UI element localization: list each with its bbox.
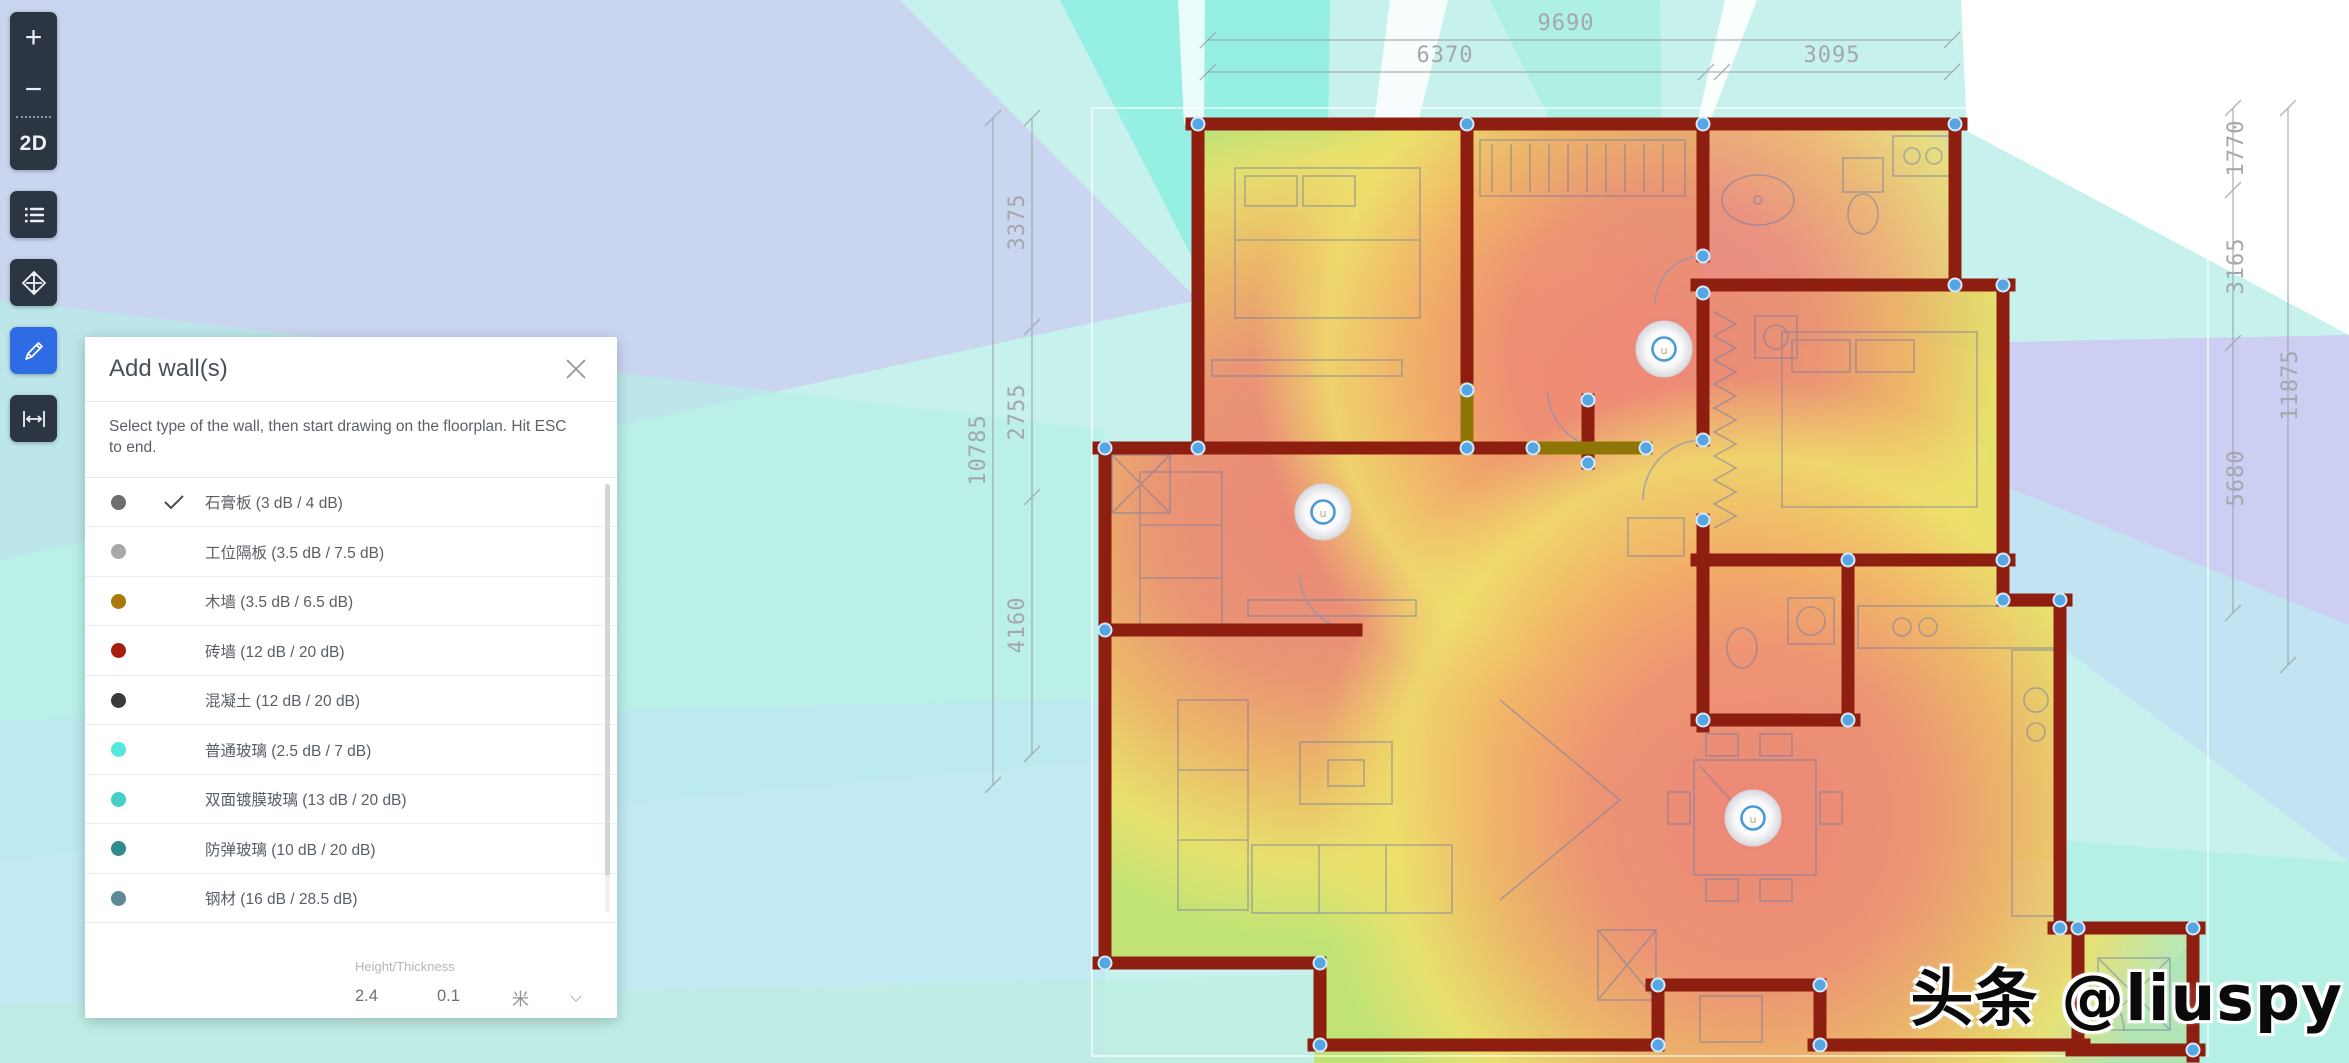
wall-type-label: 石膏板 (3 dB / 4 dB) xyxy=(205,491,343,513)
zoom-out-button[interactable]: − xyxy=(10,64,57,116)
list-icon xyxy=(22,203,46,227)
add-walls-dialog: Add wall(s) Select type of the wall, the… xyxy=(85,337,617,1018)
wall-color-dot xyxy=(111,693,126,708)
wall-type-label: 工位隔板 (3.5 dB / 7.5 dB) xyxy=(205,541,384,563)
wall-type-label: 钢材 (16 dB / 28.5 dB) xyxy=(205,887,358,909)
wall-type-label: 防弹玻璃 (10 dB / 20 dB) xyxy=(205,838,376,860)
wall-type-row[interactable]: 石膏板 (3 dB / 4 dB) xyxy=(85,478,617,528)
access-point-1[interactable]: u xyxy=(1295,484,1351,540)
move-tool-button[interactable] xyxy=(10,259,57,306)
thickness-input[interactable]: 0.1 xyxy=(437,987,460,1006)
wall-color-dot xyxy=(111,594,126,609)
measure-tool-button[interactable] xyxy=(10,395,57,442)
app-stage: 9690 6370 3095 3375 2755 4160 10785 1770… xyxy=(0,0,2349,1063)
zoom-in-button[interactable]: + xyxy=(10,12,57,64)
wall-color-dot xyxy=(111,495,126,510)
wall-type-row[interactable]: 木墙 (3.5 dB / 6.5 dB) xyxy=(85,577,617,627)
dialog-description: Select type of the wall, then start draw… xyxy=(85,402,617,478)
draw-wall-tool-button[interactable] xyxy=(10,327,57,374)
dimension-label: 4160 xyxy=(1005,597,1030,654)
wall-type-label: 普通玻璃 (2.5 dB / 7 dB) xyxy=(205,739,371,761)
dimension-label: 5680 xyxy=(2224,450,2249,507)
height-thickness-label: Height/Thickness xyxy=(355,959,455,974)
scrollbar-track[interactable] xyxy=(605,484,610,912)
svg-text:u: u xyxy=(1750,813,1757,826)
dimension-label: 9690 xyxy=(1538,11,1595,36)
dimension-label: 3165 xyxy=(2224,238,2249,295)
dimension-label: 3095 xyxy=(1804,43,1861,68)
dialog-title: Add wall(s) xyxy=(109,355,228,383)
svg-text:u: u xyxy=(1661,344,1668,357)
dimension-label: 3375 xyxy=(1005,194,1030,251)
dimension-label: 6370 xyxy=(1417,43,1474,68)
wall-color-dot xyxy=(111,643,126,658)
wall-type-label: 双面镀膜玻璃 (13 dB / 20 dB) xyxy=(205,788,407,810)
wall-type-row[interactable]: 钢材 (16 dB / 28.5 dB) xyxy=(85,874,617,924)
2d-mode-button[interactable]: 2D xyxy=(10,118,57,170)
zoom-mode-group: + − 2D xyxy=(10,12,57,170)
close-icon xyxy=(563,356,589,382)
wall-color-dot xyxy=(111,792,126,807)
wall-color-dot xyxy=(111,742,126,757)
wall-type-row[interactable]: 工位隔板 (3.5 dB / 7.5 dB) xyxy=(85,527,617,577)
access-point-2[interactable]: u xyxy=(1636,321,1692,377)
layers-list-button[interactable] xyxy=(10,191,57,238)
unit-select[interactable]: 米 xyxy=(512,985,529,1010)
wall-color-dot xyxy=(111,841,126,856)
wall-type-row[interactable]: 砖墙 (12 dB / 20 dB) xyxy=(85,626,617,676)
wall-type-label: 砖墙 (12 dB / 20 dB) xyxy=(205,640,345,662)
dialog-header: Add wall(s) xyxy=(85,337,617,402)
dialog-footer: Height/Thickness 2.4 0.1 米 xyxy=(85,923,617,1032)
close-button[interactable] xyxy=(559,352,593,386)
wall-type-row[interactable]: 普通玻璃 (2.5 dB / 7 dB) xyxy=(85,725,617,775)
toolbar: + − 2D xyxy=(10,12,57,442)
height-input[interactable]: 2.4 xyxy=(355,987,378,1006)
dimension-label: 2755 xyxy=(1005,384,1030,441)
dimension-label: 10785 xyxy=(966,414,991,485)
wall-type-row[interactable]: 双面镀膜玻璃 (13 dB / 20 dB) xyxy=(85,775,617,825)
watermark: 头条 @liuspy xyxy=(1910,948,2343,1039)
access-point-3[interactable]: u xyxy=(1725,790,1781,846)
chevron-down-icon[interactable] xyxy=(571,991,582,1002)
check-icon xyxy=(163,494,185,510)
scrollbar-thumb[interactable] xyxy=(605,484,610,876)
move-icon xyxy=(21,270,47,296)
wall-type-list: 石膏板 (3 dB / 4 dB) 工位隔板 (3.5 dB / 7.5 dB)… xyxy=(85,478,617,924)
footer-underline xyxy=(355,1022,600,1023)
wall-type-row[interactable]: 混凝土 (12 dB / 20 dB) xyxy=(85,676,617,726)
wall-type-row[interactable]: 防弹玻璃 (10 dB / 20 dB) xyxy=(85,824,617,874)
wall-type-label: 木墙 (3.5 dB / 6.5 dB) xyxy=(205,590,353,612)
measure-icon xyxy=(21,408,47,430)
pencil-icon xyxy=(22,339,46,363)
dimension-label: 1770 xyxy=(2224,120,2249,177)
wall-type-label: 混凝土 (12 dB / 20 dB) xyxy=(205,689,360,711)
dimension-label: 11875 xyxy=(2278,349,2303,420)
wall-color-dot xyxy=(111,544,126,559)
svg-text:u: u xyxy=(1320,507,1327,520)
wall-color-dot xyxy=(111,891,126,906)
